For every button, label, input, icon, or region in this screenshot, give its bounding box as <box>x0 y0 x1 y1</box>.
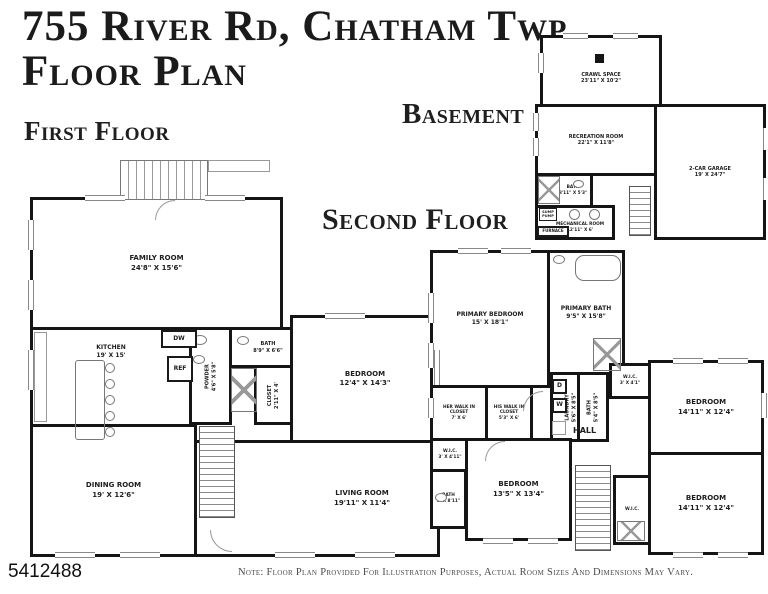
title-address: 755 River Rd, Chatham Twp <box>22 3 567 50</box>
porch-railing <box>208 160 270 172</box>
window-mark <box>613 33 638 39</box>
refrigerator-label: REF <box>174 366 187 373</box>
window-mark <box>428 398 434 418</box>
room-closet: CLOSET 2'11" X 4' <box>254 365 293 425</box>
window-mark <box>28 220 34 250</box>
dryer-label: D <box>557 383 562 390</box>
laundry-sink <box>552 421 566 435</box>
window-mark <box>55 552 95 558</box>
sump-pump-label: SUMP PUMP <box>540 211 556 219</box>
section-label-first-floor: First Floor <box>24 116 170 147</box>
sink-icon <box>573 180 584 188</box>
room-primary-bedroom: PRIMARY BEDROOM 15' X 18'1" <box>430 250 550 388</box>
room-label: KITCHEN 19' X 15' <box>96 344 126 360</box>
window-mark <box>563 33 588 39</box>
room-label: DINING ROOM 19' X 12'6" <box>86 481 141 499</box>
room-bedroom-upper: BEDROOM 14'11" X 12'4" <box>648 360 764 455</box>
floor-plan-page: { "header": { "title_line1": "755 River … <box>0 0 768 594</box>
room-label: W.I.C. 3' X 4'1" <box>620 375 640 386</box>
room-label: BEDROOM 14'11" X 12'4" <box>678 398 734 416</box>
washer-label: W <box>556 402 563 409</box>
washer: W <box>552 398 567 413</box>
window-mark <box>528 538 558 544</box>
room-crawl-space: CRAWL SPACE 23'11" X 10'2" <box>540 35 662 107</box>
dishwasher-label: DW <box>173 336 185 343</box>
refrigerator: REF <box>167 356 193 382</box>
window-mark <box>501 248 531 254</box>
room-label: PRIMARY BATH 9'5" X 15'8" <box>561 305 611 321</box>
kitchen-island <box>75 360 105 440</box>
room-dining: DINING ROOM 19' X 12'6" <box>30 424 197 557</box>
window-mark <box>763 178 768 200</box>
room-label: HER WALK IN CLOSET 7' X 6' <box>442 405 476 422</box>
room-label: 2-CAR GARAGE 19' X 24'7" <box>689 166 731 179</box>
room-label: BEDROOM 12'4" X 14'3" <box>339 370 390 388</box>
room-label: LIVING ROOM 19'11" X 11'4" <box>244 489 390 507</box>
room-label: FAMILY ROOM 24'8" X 15'6" <box>129 254 183 272</box>
room-label: POWDER 4'6" X 5'8" <box>204 361 217 391</box>
section-label-basement: Basement <box>402 98 524 131</box>
title-subtitle: Floor Plan <box>22 48 247 95</box>
window-mark <box>428 293 434 323</box>
window-mark <box>763 128 768 150</box>
kitchen-counter <box>34 332 47 422</box>
room-label: W.I.C. <box>625 507 639 513</box>
room-label: CLOSET 2'11" X 4' <box>267 382 280 409</box>
sink-icon <box>193 355 205 364</box>
stool-icon <box>105 411 115 421</box>
room-bath-first: BATH 8'9" X 6'6" <box>229 327 293 368</box>
room-bedroom-first: BEDROOM 12'4" X 14'3" <box>290 315 440 443</box>
shower-icon <box>538 176 560 204</box>
window-mark <box>28 280 34 310</box>
basement-stairs <box>629 186 651 236</box>
dishwasher: DW <box>161 330 197 348</box>
room-label: PRIMARY BEDROOM 15' X 18'1" <box>456 311 523 327</box>
stool-icon <box>105 395 115 405</box>
furnace: FURNACE <box>537 226 569 237</box>
page-title: 755 River Rd, Chatham Twp Floor Plan <box>22 4 567 94</box>
sump-pump: SUMP PUMP <box>539 208 557 221</box>
listing-id: 5412488 <box>8 561 82 583</box>
dryer: D <box>552 379 567 394</box>
room-bedroom-mid: BEDROOM 13'5" X 13'4" <box>465 438 572 541</box>
window-mark <box>673 552 703 558</box>
basement-plan: CRAWL SPACE 23'11" X 10'2" RECREATION RO… <box>533 28 768 243</box>
sink-icon <box>435 493 447 502</box>
first-floor-plan: FAMILY ROOM 24'8" X 15'6" KITCHEN 19' X … <box>25 160 423 560</box>
stool-icon <box>105 379 115 389</box>
window-mark <box>428 343 434 368</box>
window-mark <box>85 195 125 201</box>
room-label: BATH 5'4" X 8'5" <box>587 392 600 422</box>
sink-icon <box>237 336 249 345</box>
second-floor-plan: PRIMARY BEDROOM 15' X 18'1" PRIMARY BATH… <box>423 243 768 560</box>
hall-label: HALL <box>573 426 596 435</box>
disclaimer-note: Note: Floor Plan Provided For Illustrati… <box>238 567 693 578</box>
window-mark <box>718 552 748 558</box>
window-mark <box>673 358 703 364</box>
support-post <box>595 54 604 63</box>
stool-icon <box>105 427 115 437</box>
window-mark <box>458 248 488 254</box>
window-mark <box>325 313 365 319</box>
window-mark <box>205 195 245 201</box>
window-mark <box>28 350 34 390</box>
window-mark <box>355 552 395 558</box>
room-label: BEDROOM 13'5" X 13'4" <box>493 480 544 498</box>
toilet-icon <box>553 255 565 264</box>
bathtub-icon <box>575 255 621 281</box>
room-label: W.I.C. 3' X 4'11" <box>438 449 461 460</box>
window-mark <box>761 393 767 418</box>
water-heater-icon <box>569 209 580 220</box>
porch-stairs <box>120 160 208 200</box>
shower-icon <box>617 521 645 541</box>
room-recreation: RECREATION ROOM 22'1" X 11'8" <box>535 104 657 176</box>
window-mark <box>538 53 544 73</box>
room-wic-left: W.I.C. 3' X 4'11" <box>430 438 470 472</box>
room-her-closet: HER WALK IN CLOSET 7' X 6' <box>430 385 488 441</box>
room-label: RECREATION ROOM 22'1" X 11'8" <box>569 134 623 147</box>
water-heater-icon <box>589 209 600 220</box>
room-label: HIS WALK IN CLOSET 5'3" X 6' <box>493 405 525 422</box>
room-garage: 2-CAR GARAGE 19' X 24'7" <box>654 104 766 240</box>
room-his-closet: HIS WALK IN CLOSET 5'3" X 6' <box>485 385 533 441</box>
window-mark <box>120 552 160 558</box>
furnace-label: FURNACE <box>542 229 563 233</box>
second-floor-stairs <box>575 465 611 551</box>
window-mark <box>533 138 539 156</box>
window-mark <box>275 552 315 558</box>
shower-icon <box>231 368 257 412</box>
stool-icon <box>105 363 115 373</box>
shower-icon <box>593 338 621 371</box>
room-label: BEDROOM 14'11" X 12'4" <box>678 494 734 512</box>
window-mark <box>434 350 440 385</box>
window-mark <box>718 358 748 364</box>
room-bedroom-lower: BEDROOM 14'11" X 12'4" <box>648 452 764 555</box>
window-mark <box>533 113 539 131</box>
interior-stairs <box>199 426 235 518</box>
window-mark <box>483 538 513 544</box>
